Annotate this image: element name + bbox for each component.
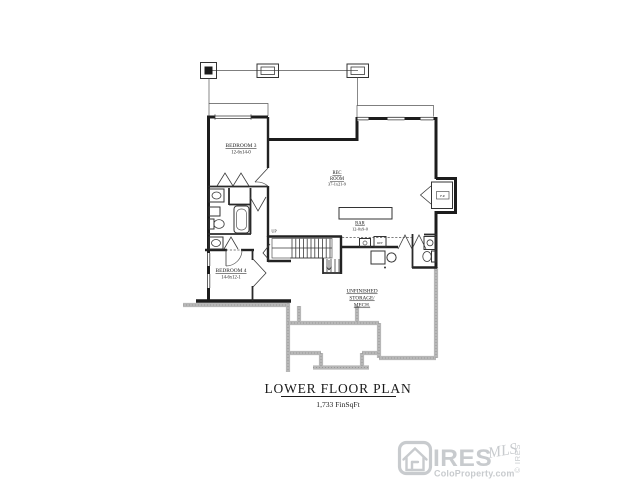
deck-edge-left [209, 104, 268, 117]
sink-icon [212, 192, 221, 199]
sink-icon [212, 240, 221, 247]
fireplace-label: F.P. [440, 194, 445, 198]
floor-drain-icon [384, 267, 386, 269]
vanity-icon [424, 237, 436, 250]
bar-sink-icon [360, 239, 371, 248]
bedroom4-label: BEDROOM 4 [216, 268, 247, 274]
bar-sink-basin [363, 241, 367, 245]
bedroom4-dims: 14-6x12-1 [221, 275, 241, 280]
foundation-walls [183, 267, 436, 372]
window-rec-2 [388, 116, 405, 121]
bar-island-counter [339, 208, 392, 220]
rec-room-dims: 37-1x21-9 [328, 182, 346, 187]
bar-dims: 12-0x9-0 [352, 226, 368, 231]
fireplace-opening [421, 186, 432, 204]
storage-label-2: STORAGE/ [349, 296, 375, 302]
bedroom3-label: BEDROOM 3 [226, 143, 257, 149]
room-labels: BEDROOM 3 12-6x14-0 REC ROOM 37-1x21-9 B… [216, 143, 378, 309]
closet-door-bedroom4 [253, 259, 266, 287]
deck-edge-right [357, 106, 434, 118]
linen-cabinet [209, 207, 220, 216]
bathtub-inner [237, 209, 247, 230]
fridge-label: REF [377, 241, 383, 245]
watermark-site: ColoProperty.com [434, 469, 515, 479]
floor-plan-page: UP F.P. REF BEDROO [0, 0, 640, 480]
window-bedroom4-2 [206, 274, 211, 288]
watermark: IRES MLS ColoProperty.com © IRES [400, 440, 523, 478]
toilet-bowl-icon [423, 252, 431, 262]
door-hall-pair [250, 197, 266, 211]
furnace-icon [371, 251, 385, 264]
house-icon [404, 449, 427, 471]
door-bedroom4-swing [226, 250, 242, 266]
storage-label-1: UNFINISHED [346, 289, 377, 295]
storage-label-3: MECH. [354, 303, 370, 309]
fireplace: F.P. [421, 182, 453, 209]
door-bedroom3-leaf [255, 168, 268, 182]
deck-post-core [205, 67, 213, 75]
water-heater-icon [387, 253, 396, 262]
stairs-up-label: UP [271, 229, 277, 234]
closet-doors-bedroom3 [217, 173, 249, 186]
page-title: LOWER FLOOR PLAN [264, 381, 411, 396]
stairs: UP [271, 229, 339, 273]
window-rec-3 [421, 116, 434, 121]
toilet-bowl-icon [214, 220, 224, 229]
title-block: LOWER FLOOR PLAN 1,733 FinSqFt [264, 381, 411, 409]
door-bath2 [224, 237, 238, 249]
rec-room-label-1: REC [332, 171, 341, 176]
window-rec-1 [358, 116, 369, 121]
foundation-gray [183, 267, 436, 372]
window-bedroom4-1 [206, 253, 211, 266]
sink-icon [427, 240, 433, 246]
door-bedroom3-swing [255, 182, 268, 186]
floor-plan-drawing: UP F.P. REF BEDROO [0, 0, 640, 480]
page-subtitle: 1,733 FinSqFt [316, 400, 360, 409]
watermark-vertical-text: © IRES [513, 444, 522, 473]
bedroom3-dims: 12-6x14-0 [231, 151, 251, 156]
vanity-icon [209, 189, 224, 202]
bar-area: REF [339, 208, 412, 248]
mechanical-equipment [371, 251, 396, 269]
deck-structure [201, 63, 434, 118]
